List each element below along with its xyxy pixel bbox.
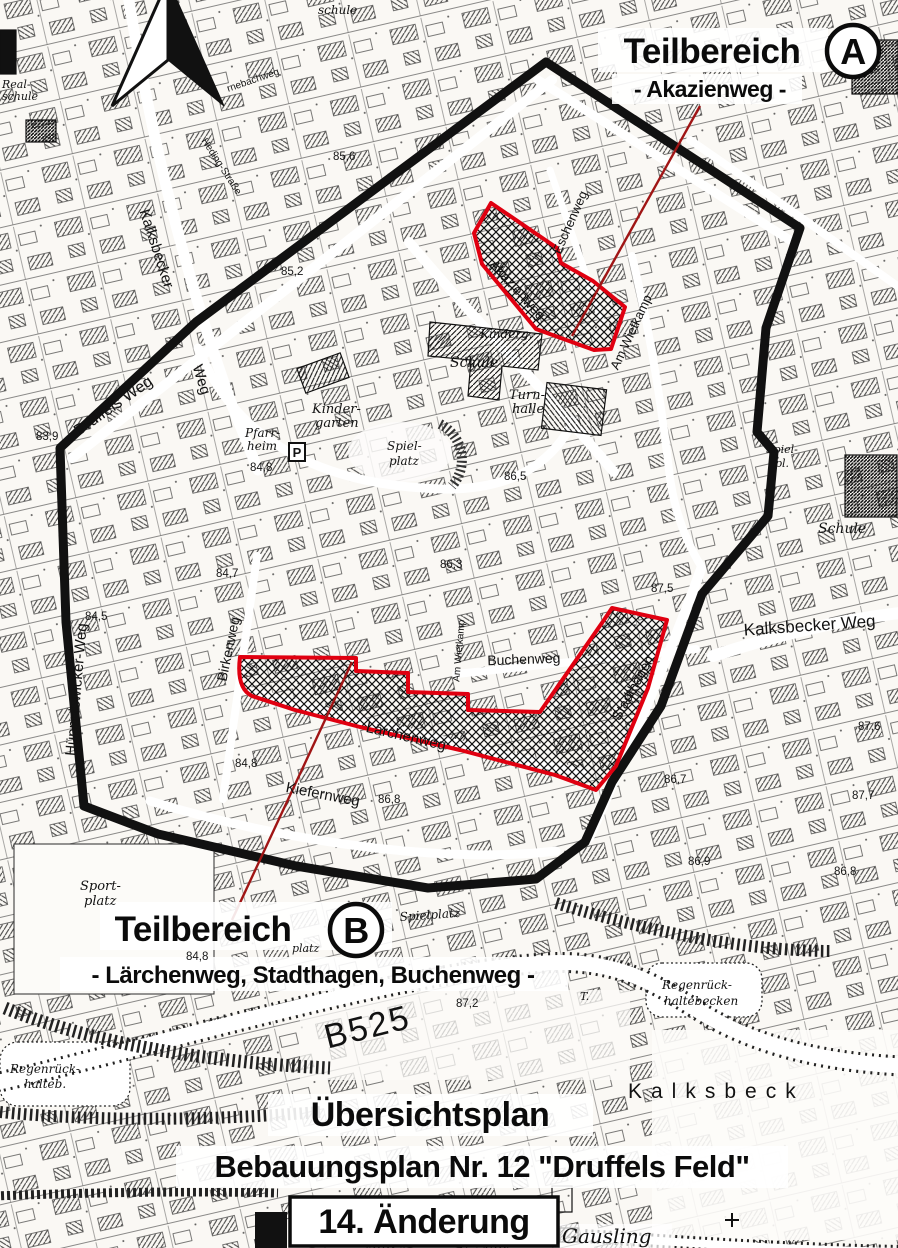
place-label-spielplatz-1: Spiel-	[387, 439, 422, 453]
place-label-kalksbeck: Kalksbeck	[628, 1080, 805, 1103]
teilbereich-a-title: Teilbereich	[624, 32, 801, 71]
place-label-gausling: Gausling	[562, 1224, 652, 1248]
map-black-bar	[255, 1212, 287, 1248]
place-label-realschule-2: schule	[2, 90, 38, 103]
place-label-t-marker: T.	[580, 990, 589, 1003]
map-svg: Teilbereich A - Akazienweg - Teilbereich…	[0, 0, 898, 1248]
place-label-pfarrheim-2: heim	[247, 439, 277, 453]
elevation-label: 86,5	[504, 471, 526, 483]
plan-subtitle: Bebauungsplan Nr. 12 "Druffels Feld"	[214, 1149, 749, 1184]
parking-sign-letter: P	[293, 445, 302, 460]
place-label-schule: Schule	[450, 355, 498, 371]
place-label-regenbecken-w-1: Regenrück-	[9, 1062, 80, 1076]
place-label-regenbecken-w-2: halteb.	[24, 1077, 66, 1091]
place-label-spielplatz-2: platz	[389, 454, 419, 468]
elevation-label: 86,8	[378, 794, 400, 806]
elevation-label: 83,9	[36, 431, 58, 443]
place-label-platz-fragment: platz	[292, 942, 320, 955]
place-label-spielpl-e-2: pl.	[775, 457, 789, 470]
elevation-label: 85,2	[281, 266, 303, 278]
place-label-regenbecken-e-1: Regenrück-	[661, 978, 732, 992]
teilbereich-b-badge-letter: B	[343, 910, 369, 951]
elevation-label: 87,6	[858, 721, 880, 733]
teilbereich-a-subtitle: - Akazienweg -	[634, 76, 786, 102]
teilbereich-b-title: Teilbereich	[115, 910, 292, 949]
elevation-label: 87,5	[651, 583, 673, 595]
elevation-label: 84,7	[216, 568, 238, 580]
street-label-buchenweg: Buchenweg	[487, 650, 561, 669]
elevation-label: 84,8	[235, 758, 257, 770]
teilbereich-b-subtitle: - Lärchenweg, Stadthagen, Buchenweg -	[92, 962, 535, 989]
elevation-label: 87,2	[456, 998, 478, 1010]
uebersichtsplan-map: Teilbereich A - Akazienweg - Teilbereich…	[0, 0, 898, 1248]
place-label-schule-e: Schule	[818, 521, 866, 537]
elevation-label: 85,6	[333, 151, 355, 163]
revision-label: 14. Änderung	[318, 1203, 529, 1241]
elevation-label: 87,7	[852, 790, 874, 802]
elevation-label: 84,5	[85, 611, 107, 623]
elevation-label: 86,3	[440, 559, 462, 571]
elevation-label: 86,8	[834, 866, 856, 878]
elevation-label: 86,7	[664, 774, 686, 786]
teilbereich-a-badge-letter: A	[840, 31, 866, 72]
elevation-label: 84,8	[250, 462, 272, 474]
elevation-label: 86,9	[688, 856, 710, 868]
place-label-kinderg: Kinderg.	[479, 327, 533, 341]
place-label-turnhalle-1: Turn-	[509, 388, 545, 403]
place-label-schule-top: schule	[318, 3, 357, 17]
elevation-label: 84,8	[186, 951, 208, 963]
place-label-regenbecken-e-2: haltebecken	[664, 994, 738, 1008]
plan-title: Übersichtsplan	[311, 1096, 550, 1134]
place-label-pfarrheim-1: Pfarr-	[244, 426, 280, 440]
place-label-kindergarten-2: garten	[315, 416, 359, 431]
place-label-turnhalle-2: halle	[512, 402, 544, 417]
place-label-sportplatz-1: Sport-	[80, 879, 121, 894]
place-label-sportplatz-2: platz	[84, 894, 116, 909]
parking-sign: P	[289, 443, 305, 461]
place-label-kindergarten-1: Kinder-	[311, 402, 361, 417]
place-label-spielpl-e-1: Spiel-	[766, 443, 798, 456]
